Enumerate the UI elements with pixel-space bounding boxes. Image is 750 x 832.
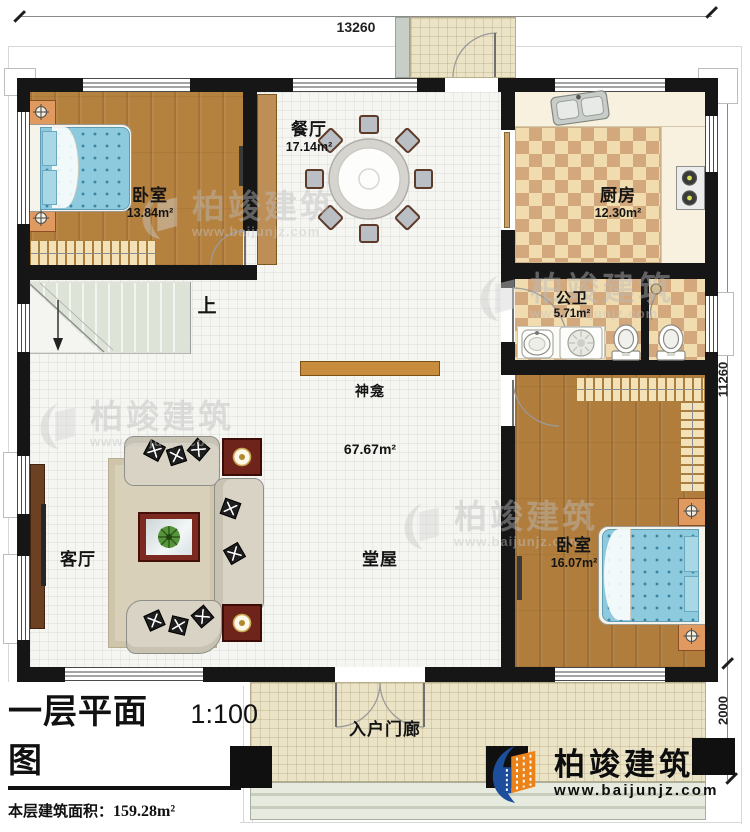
dimension-line-top	[20, 16, 712, 17]
nightstand	[678, 624, 707, 651]
company-website: www.baijunjz.com	[554, 782, 719, 799]
nightstand	[678, 498, 707, 526]
window	[65, 667, 203, 682]
bed-pillow	[684, 576, 699, 612]
boundary-line-bottom	[240, 822, 742, 823]
wall-segment	[417, 78, 445, 92]
window	[17, 304, 30, 352]
tv-living	[41, 504, 46, 586]
wall-segment	[665, 667, 718, 682]
room-label-living: 客厅	[46, 550, 110, 570]
bed-pillow	[42, 170, 57, 205]
wall-segment	[17, 78, 30, 112]
floor-plan-sheet: 13260 11260 2000	[0, 0, 750, 832]
room-label-dining: 餐厅 17.14m²	[259, 120, 359, 155]
wall-segment	[705, 78, 718, 116]
sheet-scale: 1:100	[190, 699, 258, 730]
sheet-title: 一层平面图	[8, 684, 178, 782]
hall-area-label: 67.67m²	[325, 440, 415, 459]
wall-segment	[501, 360, 718, 375]
wall-segment	[705, 352, 718, 682]
wall-segment	[641, 279, 649, 360]
kitchen-opening-threshold	[504, 132, 510, 228]
wall-segment	[17, 514, 30, 556]
room-label-bedroom1: 卧室 13.84m²	[100, 186, 200, 221]
title-block: 一层平面图 1:100 本层建筑面积：159.28m² 本栋建筑面积：294.2…	[8, 684, 258, 832]
wall-segment	[501, 92, 515, 130]
wall-segment	[501, 230, 515, 265]
stove	[676, 166, 705, 210]
company-logo-icon	[490, 744, 544, 804]
company-name: 柏竣建筑	[554, 749, 719, 782]
kitchen-counter-top	[515, 92, 705, 127]
wardrobe-side	[680, 402, 705, 492]
wall-segment	[190, 78, 293, 92]
window	[705, 116, 718, 172]
stairs-up-label: 上	[192, 296, 222, 319]
window	[17, 112, 30, 224]
wall-segment	[17, 352, 30, 456]
wall-segment	[501, 426, 515, 667]
window	[705, 296, 718, 352]
room-label-porch: 入户门廊	[330, 720, 440, 740]
company-logo: 柏竣建筑 www.baijunjz.com	[490, 744, 719, 804]
rear-porch	[410, 17, 516, 78]
stairs	[30, 282, 191, 354]
window	[83, 78, 190, 92]
wardrobe	[30, 240, 156, 267]
wall-segment	[17, 224, 30, 304]
wall-segment	[425, 667, 555, 682]
boundary-line-top	[8, 46, 742, 47]
window	[17, 556, 30, 640]
dimension-line-right	[727, 84, 728, 780]
wall-segment	[203, 667, 335, 682]
altar-shelf	[300, 361, 440, 376]
dimension-width: 13260	[326, 19, 386, 35]
room-label-bedroom2: 卧室 16.07m²	[524, 536, 624, 571]
bathroom-counter	[517, 326, 605, 359]
wall-segment	[17, 667, 65, 682]
window	[555, 78, 665, 92]
wall-segment	[501, 279, 515, 288]
room-label-bathroom: 公卫 5.71m²	[522, 290, 622, 322]
bed-pillow	[42, 131, 57, 166]
rear-porch-pad	[395, 17, 410, 78]
window	[555, 667, 665, 682]
wall-segment	[243, 92, 257, 231]
dimension-porch-depth: 2000	[716, 689, 731, 733]
window	[17, 456, 30, 514]
coffee-table-glass	[146, 519, 192, 555]
altar-label: 神龛	[338, 382, 402, 401]
wall-segment	[17, 265, 257, 280]
window	[293, 78, 417, 92]
nightstand	[28, 100, 56, 126]
room-label-hall: 堂屋	[348, 550, 412, 570]
stat-floor-area: 本层建筑面积：159.28m²	[8, 800, 258, 821]
end-table	[222, 604, 262, 642]
end-table	[222, 438, 262, 476]
wardrobe	[576, 377, 705, 402]
wall-segment	[498, 78, 555, 92]
tv-bedroom2	[517, 556, 522, 600]
wall-segment	[501, 263, 718, 279]
boundary-line-right	[741, 46, 742, 824]
bed-pillow	[684, 536, 699, 572]
title-underline	[8, 786, 241, 790]
room-label-kitchen: 厨房 12.30m²	[568, 186, 668, 221]
